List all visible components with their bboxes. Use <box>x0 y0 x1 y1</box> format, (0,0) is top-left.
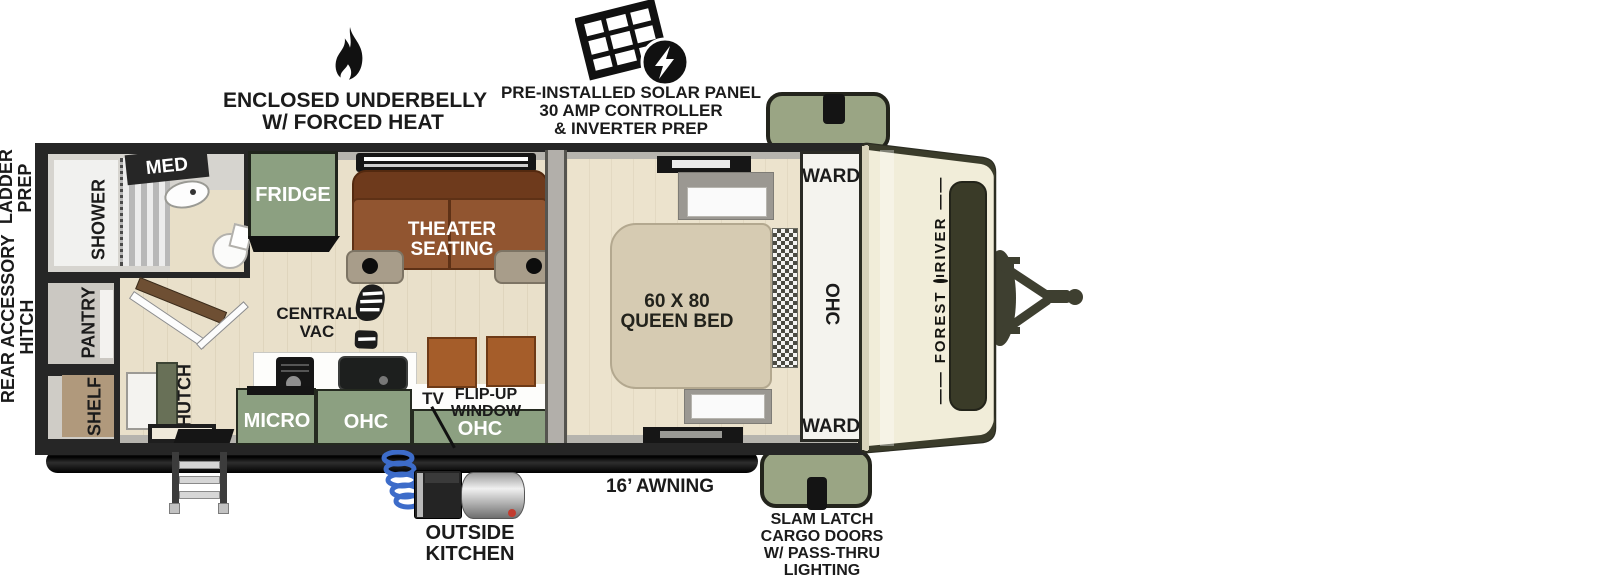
ottoman-left <box>427 337 477 388</box>
ladder-rail-left <box>172 452 179 504</box>
bed-pillow <box>772 228 798 368</box>
rear-hitch-line1: REAR ACCESSORY <box>0 251 18 403</box>
bedroom-cabinet-bottom <box>684 389 772 424</box>
ladder-prep-line1: LADDER <box>0 152 16 224</box>
stove-grate-line2 <box>281 370 309 372</box>
awning-callout: 16’ AWNING <box>600 477 720 497</box>
bedroom-vent-bottom <box>643 427 743 443</box>
slam-latch-callout: SLAM LATCH CARGO DOORS W/ PASS-THRU LIGH… <box>750 511 894 579</box>
cupholder-left-icon <box>362 258 378 274</box>
rv-floorplan-diagram: ENCLOSED UNDERBELLY W/ FORCED HEAT PRE-I… <box>0 0 1600 581</box>
hutch-cabinet-white <box>126 372 158 430</box>
flipup-line2: WINDOW <box>444 404 528 421</box>
slam-latch-line4: LIGHTING <box>750 562 894 579</box>
bed-line2: QUEEN BED <box>617 312 737 332</box>
flip-up-window-label: FLIP-UP WINDOW <box>444 387 528 421</box>
bedroom-vent-top <box>657 156 751 173</box>
bedroom-cabinet-top-door <box>687 187 767 217</box>
forest-river-brand: —— FOREST RIVER —— <box>933 190 949 390</box>
ladder-prep-callout: LADDER PREP <box>0 152 35 224</box>
outside-kitchen-callout: OUTSIDE KITCHEN <box>418 523 522 565</box>
solar-line2: 30 AMP CONTROLLER <box>500 102 762 120</box>
theater-line2: SEATING <box>392 240 512 260</box>
outside-kitchen-griddle <box>414 470 462 519</box>
vent-bottom-glass <box>660 431 722 438</box>
stove-grate-line <box>281 364 309 366</box>
forced-heat-flame-icon <box>327 26 373 88</box>
window-glass-line2 <box>364 164 528 167</box>
vent-top-glass <box>672 160 730 168</box>
underbelly-line1: ENCLOSED UNDERBELLY <box>223 90 483 112</box>
tank-valve-dot <box>508 509 516 517</box>
solar-callout: PRE-INSTALLED SOLAR PANEL 30 AMP CONTROL… <box>500 84 762 138</box>
pantry-shelf-strip <box>100 290 113 358</box>
solar-line3: & INVERTER PREP <box>500 120 762 138</box>
slam-latch-line1: SLAM LATCH <box>750 511 894 528</box>
slam-latch-line2: CARGO DOORS <box>750 528 894 545</box>
flipup-line1: FLIP-UP <box>444 387 528 404</box>
brand-dash-right: —— <box>933 176 949 210</box>
cargo-door-bottom-latch-icon <box>807 477 827 510</box>
kitchen-sink <box>338 356 408 391</box>
rear-accessory-hitch-callout: REAR ACCESSORY HITCH <box>0 251 37 403</box>
ottoman-right <box>486 336 536 387</box>
ladder-foot-right <box>218 503 229 514</box>
ohc-kitchen-label: OHC <box>328 412 404 433</box>
outside-kitchen-line1: OUTSIDE <box>418 523 522 544</box>
bedroom-cabinet-top <box>678 172 774 220</box>
brand-word-river: RIVER <box>933 217 949 273</box>
griddle-handle <box>417 473 423 517</box>
underbelly-callout: ENCLOSED UNDERBELLY W/ FORCED HEAT <box>223 90 483 135</box>
bed-line1: 60 X 80 <box>617 292 737 312</box>
window-glass-line <box>364 157 528 161</box>
theater-seating-label: THEATER SEATING <box>392 220 512 260</box>
forest-river-tree-logo-icon <box>933 279 948 283</box>
sink-drain-dot <box>190 189 196 195</box>
solar-line1: PRE-INSTALLED SOLAR PANEL <box>500 84 762 102</box>
ladder-step <box>179 476 220 484</box>
theater-line1: THEATER <box>392 220 512 240</box>
shower-label: SHOWER <box>89 177 108 263</box>
shelf-label: SHELF <box>85 375 104 439</box>
solar-panel-icon <box>575 0 697 92</box>
slam-latch-line3: W/ PASS-THRU <box>750 545 894 562</box>
ladder-prep-line2: PREP <box>16 152 35 224</box>
ladder-rail-right <box>220 452 227 504</box>
cupholder-right-icon <box>526 258 542 274</box>
brand-dash-left: —— <box>933 370 949 404</box>
bedroom-cabinet-bottom-door <box>691 394 765 419</box>
micro-counter-edge <box>247 386 314 395</box>
outside-kitchen-line2: KITCHEN <box>418 544 522 565</box>
griddle-lid <box>425 473 459 483</box>
outside-kitchen-tank <box>461 472 525 519</box>
hutch-counter-edge <box>174 429 235 443</box>
ladder-step <box>179 491 220 499</box>
micro-label: MICRO <box>238 411 316 432</box>
fridge-label: FRIDGE <box>248 185 338 206</box>
front-cap-window <box>950 182 986 410</box>
front-cap <box>850 128 1090 468</box>
hutch-label: HUTCH <box>175 361 194 431</box>
underbelly-line2: W/ FORCED HEAT <box>223 112 483 134</box>
ohc-entry-label: OHC <box>442 419 518 440</box>
kitchen-sink-drain <box>379 376 388 385</box>
bedroom-divider-wall <box>545 150 567 443</box>
ladder-step <box>179 461 220 469</box>
queen-bed-label: 60 X 80 QUEEN BED <box>617 292 737 332</box>
ladder-foot-left <box>169 503 180 514</box>
brand-word-forest: FOREST <box>933 290 949 363</box>
cargo-door-top-latch-icon <box>823 94 845 124</box>
fridge-base <box>248 236 340 252</box>
ohc-bedroom-label: OHC <box>821 281 841 327</box>
pantry-label: PANTRY <box>79 283 98 363</box>
